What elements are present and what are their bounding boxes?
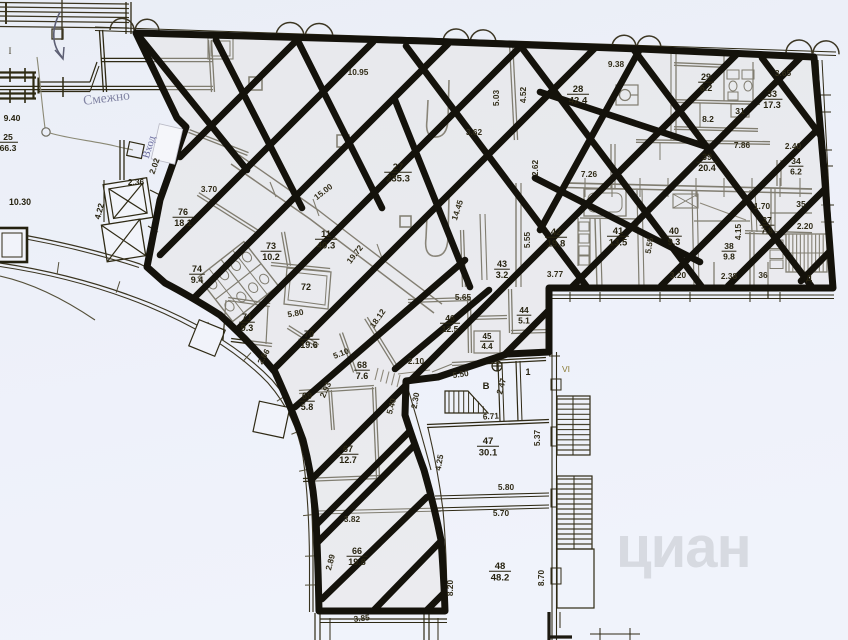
svg-text:циан: циан: [616, 515, 751, 580]
svg-text:1.70: 1.70: [754, 201, 771, 211]
svg-text:69: 69: [302, 391, 312, 401]
svg-text:42: 42: [551, 227, 562, 238]
svg-text:74: 74: [192, 264, 202, 274]
svg-text:2.10: 2.10: [408, 356, 425, 366]
svg-text:76: 76: [178, 207, 188, 217]
svg-text:235.3: 235.3: [386, 174, 410, 185]
svg-text:VI: VI: [562, 364, 570, 374]
svg-text:9.3: 9.3: [668, 237, 681, 247]
svg-text:19.8: 19.8: [348, 557, 366, 567]
svg-text:2.36: 2.36: [128, 177, 145, 187]
svg-text:9.4: 9.4: [191, 275, 204, 285]
svg-text:67: 67: [343, 444, 353, 454]
svg-text:47: 47: [483, 436, 494, 447]
svg-text:9.8: 9.8: [723, 252, 735, 262]
svg-text:38: 38: [724, 241, 734, 251]
svg-text:8.20: 8.20: [445, 580, 455, 597]
svg-text:39: 39: [702, 152, 712, 162]
svg-text:33: 33: [767, 89, 777, 99]
svg-text:5.70: 5.70: [493, 508, 510, 518]
svg-text:3.82: 3.82: [344, 514, 361, 524]
svg-text:68: 68: [357, 360, 367, 370]
svg-text:31: 31: [735, 106, 745, 116]
svg-text:5.80: 5.80: [498, 482, 515, 492]
svg-text:48: 48: [495, 561, 506, 572]
svg-text:40.3: 40.3: [317, 241, 336, 252]
svg-text:5.55: 5.55: [522, 232, 532, 249]
svg-text:10.2: 10.2: [262, 252, 280, 262]
svg-text:3.20: 3.20: [670, 270, 687, 280]
svg-text:34: 34: [791, 156, 801, 166]
svg-text:8.70: 8.70: [536, 570, 546, 587]
svg-text:35: 35: [796, 199, 806, 209]
svg-text:5.65: 5.65: [455, 292, 472, 302]
svg-text:2.62: 2.62: [530, 160, 540, 177]
svg-text:4.4: 4.4: [481, 342, 493, 351]
svg-text:42.4: 42.4: [569, 96, 588, 107]
svg-text:5.1: 5.1: [518, 316, 530, 326]
svg-text:6.2: 6.2: [790, 167, 802, 177]
svg-text:3.65: 3.65: [775, 68, 792, 78]
svg-text:3.2: 3.2: [496, 270, 509, 280]
svg-text:12.7: 12.7: [339, 455, 357, 465]
svg-text:1: 1: [525, 367, 530, 377]
svg-text:3.77: 3.77: [547, 269, 564, 279]
svg-text:В: В: [483, 381, 490, 392]
svg-text:4.52: 4.52: [518, 87, 528, 104]
svg-text:66.3: 66.3: [0, 143, 17, 153]
svg-text:3.62: 3.62: [466, 127, 483, 137]
svg-text:12.5: 12.5: [442, 324, 459, 334]
svg-text:7.86: 7.86: [734, 140, 751, 150]
svg-text:8.2: 8.2: [702, 114, 714, 124]
svg-text:9.3: 9.3: [241, 323, 254, 333]
svg-text:20.4: 20.4: [698, 163, 716, 173]
svg-text:37: 37: [762, 215, 772, 225]
svg-text:5.37: 5.37: [532, 430, 542, 447]
svg-text:10.30: 10.30: [9, 197, 31, 207]
svg-text:30.1: 30.1: [479, 448, 498, 459]
svg-text:7.6: 7.6: [356, 371, 369, 381]
svg-text:2.20: 2.20: [797, 221, 814, 231]
svg-text:25: 25: [3, 132, 13, 142]
svg-text:19.6: 19.6: [300, 340, 318, 350]
svg-text:3.85: 3.85: [353, 612, 370, 624]
svg-text:71: 71: [242, 312, 252, 322]
svg-text:28: 28: [573, 84, 584, 95]
svg-text:7.8: 7.8: [761, 226, 773, 236]
svg-text:2.40: 2.40: [785, 141, 802, 151]
svg-text:36: 36: [758, 270, 768, 280]
svg-text:44: 44: [519, 305, 529, 315]
svg-text:3.70: 3.70: [201, 184, 218, 194]
svg-text:73: 73: [266, 241, 276, 251]
svg-text:10.95: 10.95: [348, 67, 369, 77]
svg-text:Д: Д: [806, 273, 812, 283]
svg-text:27: 27: [393, 162, 404, 173]
svg-text:48.2: 48.2: [491, 573, 510, 584]
svg-text:2.38: 2.38: [721, 271, 738, 281]
svg-text:11: 11: [321, 229, 332, 240]
svg-text:9.40: 9.40: [4, 113, 21, 123]
svg-text:19.8: 19.8: [547, 239, 566, 250]
svg-text:43: 43: [497, 259, 507, 269]
svg-text:72: 72: [301, 282, 311, 292]
svg-text:29: 29: [701, 72, 711, 82]
svg-text:9.38: 9.38: [608, 59, 625, 69]
svg-text:6.71: 6.71: [482, 410, 499, 421]
svg-text:70: 70: [304, 329, 314, 339]
svg-text:66: 66: [352, 546, 362, 556]
svg-text:4.15: 4.15: [733, 224, 743, 241]
svg-text:18.1: 18.1: [174, 218, 192, 228]
svg-text:6.2: 6.2: [700, 83, 713, 93]
svg-text:17.3: 17.3: [763, 100, 781, 110]
svg-text:7.26: 7.26: [581, 169, 598, 179]
svg-text:5.8: 5.8: [301, 402, 314, 412]
svg-text:5.03: 5.03: [491, 90, 501, 107]
svg-text:40: 40: [669, 226, 679, 236]
svg-text:13.5: 13.5: [609, 238, 628, 249]
svg-text:45: 45: [483, 332, 492, 341]
svg-text:46: 46: [445, 313, 455, 323]
svg-text:41: 41: [613, 226, 624, 237]
svg-text:I: I: [9, 46, 12, 56]
